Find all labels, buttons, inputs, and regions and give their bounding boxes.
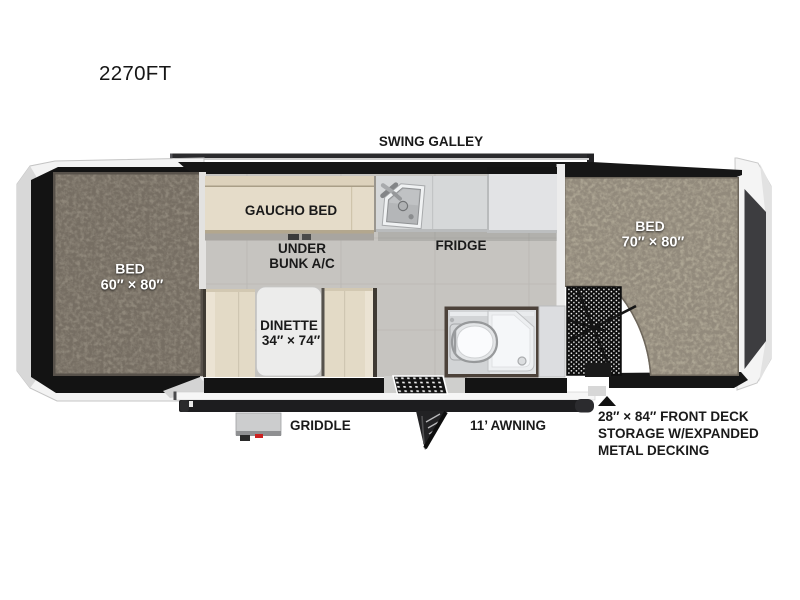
svg-text:11’ AWNING: 11’ AWNING [470,418,546,433]
svg-text:BUNK A/C: BUNK A/C [269,256,335,271]
svg-text:70″ × 80″: 70″ × 80″ [622,235,685,251]
svg-text:STORAGE W/EXPANDED: STORAGE W/EXPANDED [598,426,759,441]
svg-text:60″ × 80″: 60″ × 80″ [101,278,164,294]
svg-text:FRIDGE: FRIDGE [435,238,486,253]
svg-text:UNDER: UNDER [278,241,326,256]
svg-text:SWING GALLEY: SWING GALLEY [379,134,483,149]
svg-text:DINETTE: DINETTE [260,318,318,333]
svg-text:2270FT: 2270FT [99,62,172,85]
svg-text:BED: BED [635,218,665,234]
svg-text:BED: BED [115,261,145,277]
svg-text:34″ × 74″: 34″ × 74″ [262,333,321,348]
svg-text:METAL DECKING: METAL DECKING [598,443,709,458]
svg-text:GAUCHO BED: GAUCHO BED [245,203,338,218]
svg-text:28″ × 84″ FRONT DECK: 28″ × 84″ FRONT DECK [598,409,749,424]
svg-text:GRIDDLE: GRIDDLE [290,418,351,433]
